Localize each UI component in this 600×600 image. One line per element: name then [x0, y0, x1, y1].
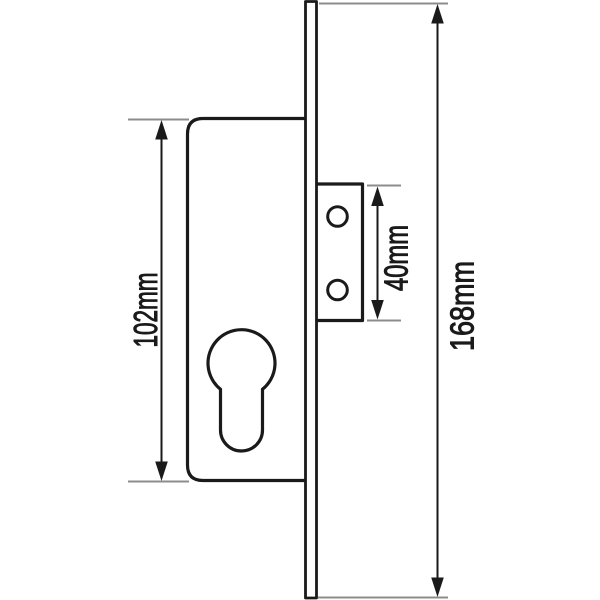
- dimension-label-40mm: 40mm: [378, 225, 415, 291]
- dimension-label-168mm: 168mm: [444, 261, 481, 351]
- dimension-label-102mm: 102mm: [127, 273, 164, 348]
- arrowhead-up-icon: [371, 187, 384, 207]
- faceplate: [306, 2, 317, 599]
- screw-hole-top: [328, 207, 348, 227]
- dimension-lock-body-height: 102mm: [127, 120, 168, 481]
- dimension-faceplate-height: 168mm: [431, 4, 480, 597]
- diagram-svg: 102mm 40mm 168mm: [0, 0, 600, 600]
- arrowhead-down-icon: [155, 462, 168, 482]
- lock-assembly: [188, 2, 363, 599]
- lock-dimension-diagram: 102mm 40mm 168mm: [0, 0, 600, 600]
- arrowhead-up-icon: [155, 120, 168, 140]
- arrowhead-up-icon: [431, 4, 444, 24]
- dimension-bracket-span: 40mm: [371, 187, 414, 320]
- arrowhead-down-icon: [431, 578, 444, 598]
- arrowhead-down-icon: [371, 300, 384, 320]
- screw-hole-bottom: [328, 280, 348, 300]
